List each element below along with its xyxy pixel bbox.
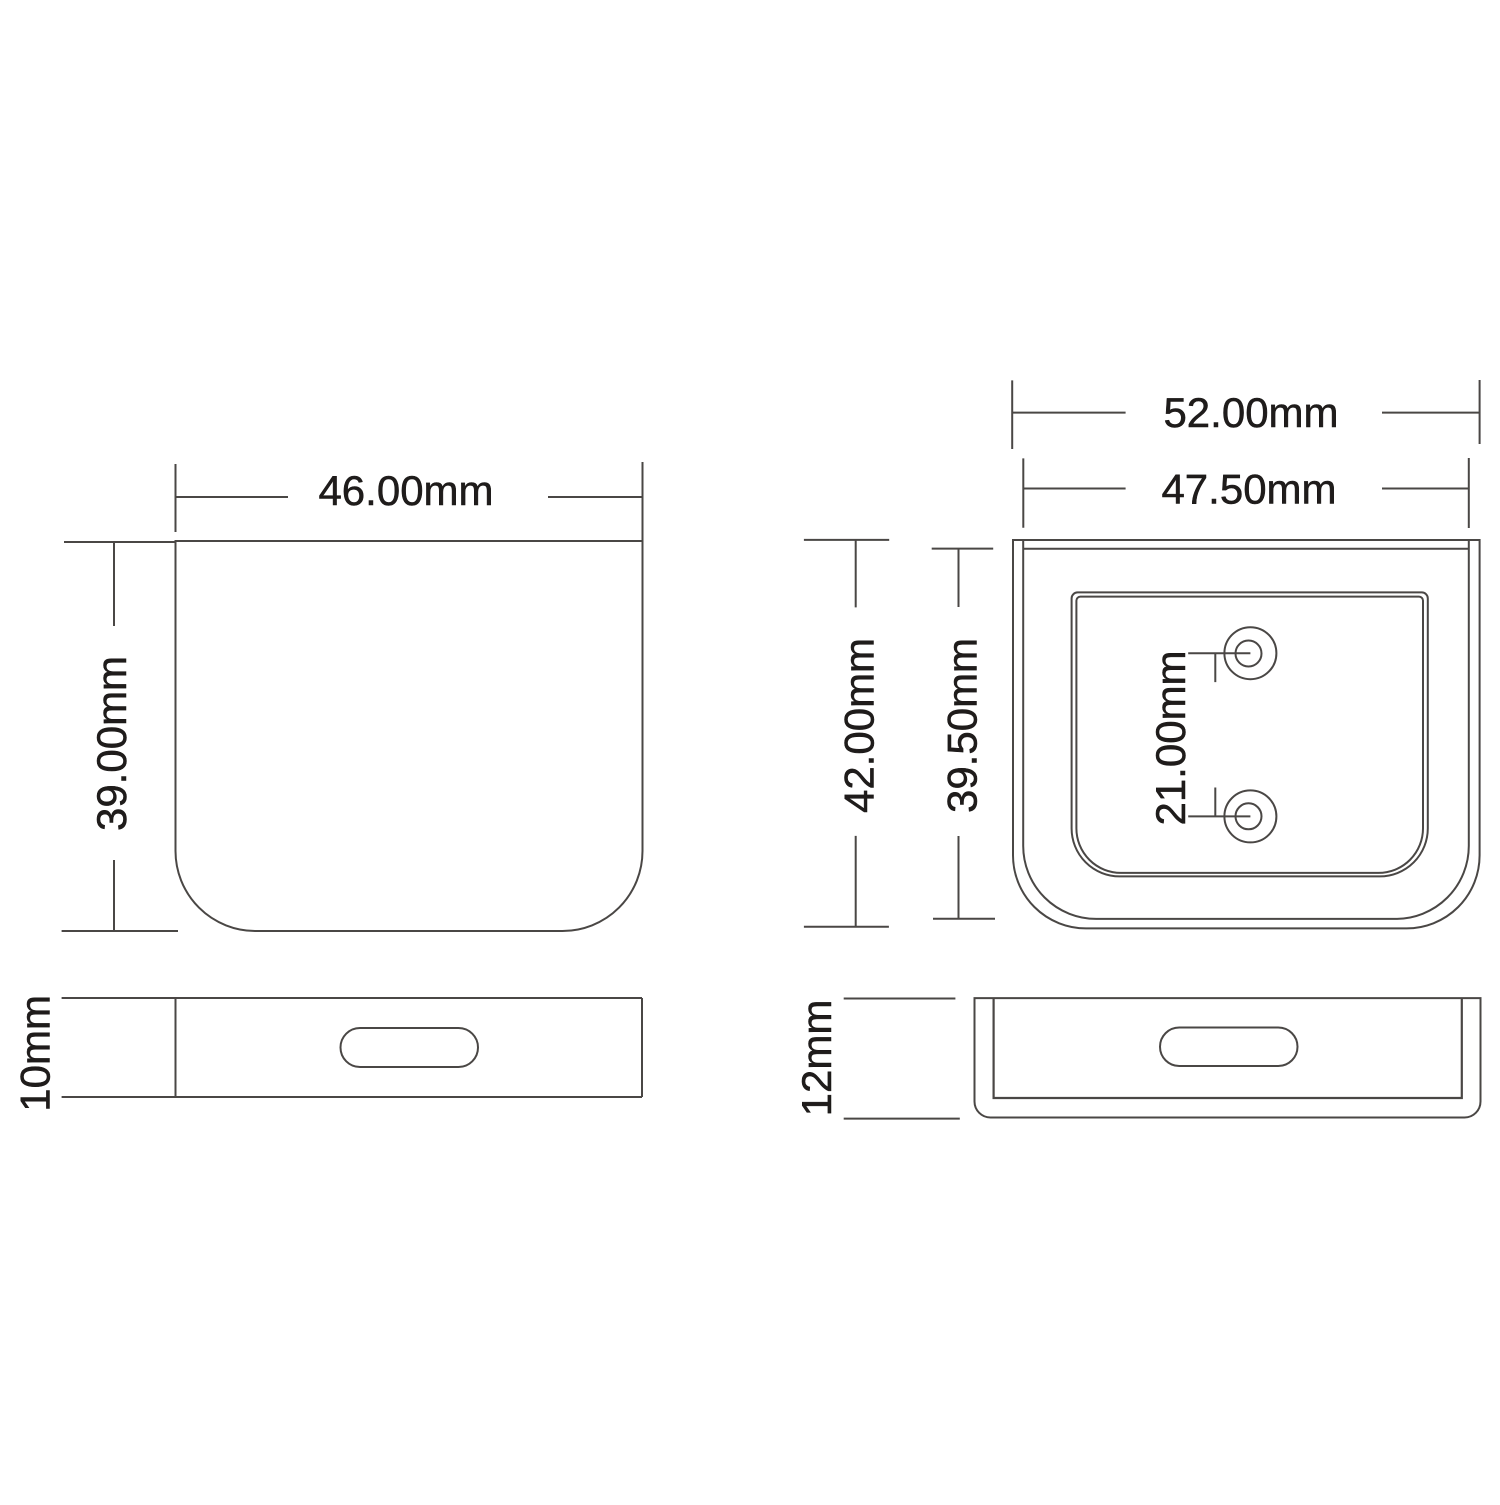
svg-text:10mm: 10mm bbox=[12, 995, 59, 1112]
svg-text:52.00mm: 52.00mm bbox=[1163, 389, 1338, 436]
svg-text:21.00mm: 21.00mm bbox=[1147, 650, 1194, 825]
svg-text:42.00mm: 42.00mm bbox=[835, 638, 882, 813]
svg-text:39.50mm: 39.50mm bbox=[938, 638, 985, 813]
svg-text:47.50mm: 47.50mm bbox=[1161, 465, 1336, 512]
svg-text:12mm: 12mm bbox=[793, 1000, 840, 1117]
svg-text:39.00mm: 39.00mm bbox=[88, 656, 135, 831]
svg-text:46.00mm: 46.00mm bbox=[318, 467, 493, 514]
